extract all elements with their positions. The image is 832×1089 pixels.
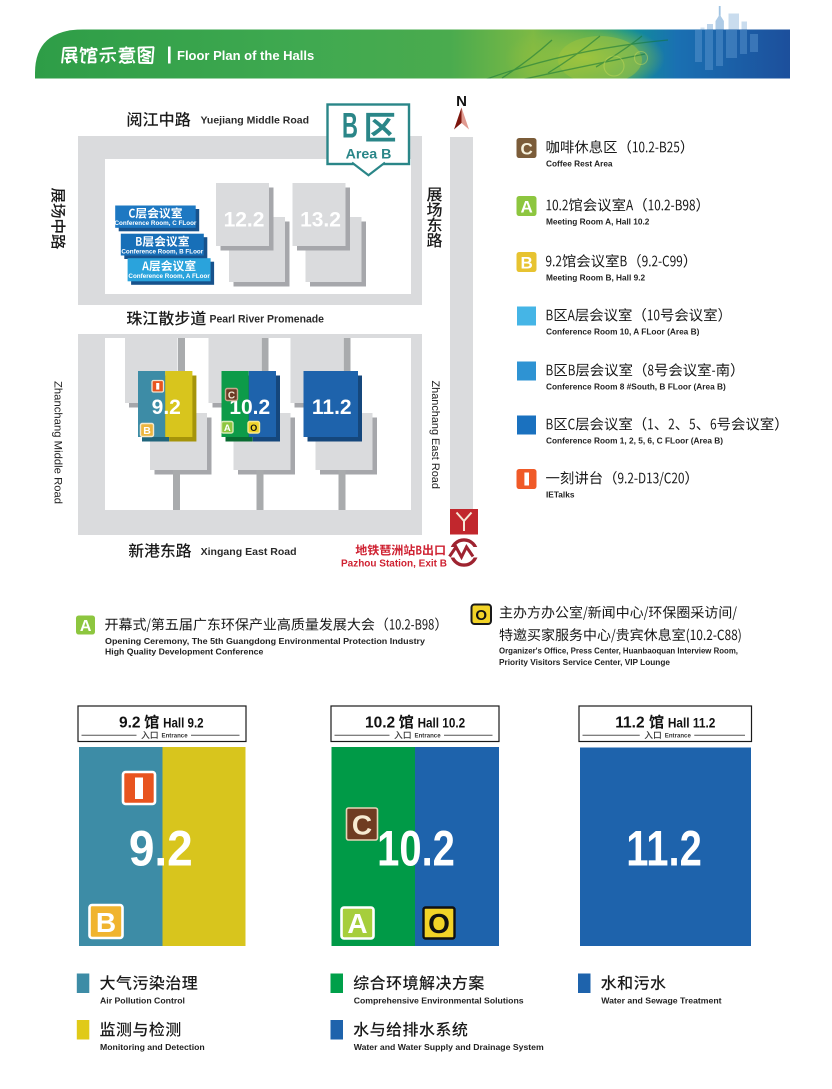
- svg-text:9.2: 9.2: [129, 822, 193, 877]
- svg-text:11.2: 11.2: [626, 820, 702, 876]
- svg-text:Air Pollution Control: Air Pollution Control: [100, 996, 185, 1006]
- svg-text:Zhanchang Middle Road: Zhanchang Middle Road: [52, 381, 64, 504]
- svg-text:Priority Visitors Service Cent: Priority Visitors Service Center, VIP Lo…: [499, 657, 670, 667]
- svg-text:Floor Plan of the Halls: Floor Plan of the Halls: [177, 48, 314, 63]
- svg-text:B: B: [96, 907, 116, 938]
- svg-text:B: B: [143, 425, 151, 437]
- svg-text:N: N: [456, 93, 467, 110]
- svg-text:Conference Room, C FLoor: Conference Room, C FLoor: [115, 220, 197, 227]
- svg-text:Meeting Room A, Hall 10.2: Meeting Room A, Hall 10.2: [546, 216, 650, 226]
- svg-text:13.2: 13.2: [300, 209, 341, 232]
- svg-text:Pazhou Station, Exit B: Pazhou Station, Exit B: [341, 559, 447, 570]
- svg-text:High Quality Development Confe: High Quality Development Conference: [105, 647, 264, 657]
- svg-text:Conference Room 8 #South, B FL: Conference Room 8 #South, B FLoor (Area …: [546, 381, 726, 391]
- svg-text:C: C: [228, 390, 235, 401]
- svg-text:Conference Room 1, 2, 5, 6, C: Conference Room 1, 2, 5, 6, C FLoor (Are…: [546, 435, 723, 445]
- svg-text:A: A: [347, 908, 367, 939]
- svg-text:Meeting Room B, Hall 9.2: Meeting Room B, Hall 9.2: [546, 272, 646, 282]
- svg-text:B: B: [521, 253, 533, 272]
- svg-text:Organizer's Office, Press Cent: Organizer's Office, Press Center, Huanba…: [499, 646, 738, 656]
- svg-text:A: A: [224, 423, 231, 434]
- svg-text:Entrance: Entrance: [665, 733, 692, 740]
- svg-text:Hall 10.2: Hall 10.2: [418, 716, 466, 732]
- svg-text:O: O: [428, 908, 450, 939]
- svg-text:Water and Water Supply and Dra: Water and Water Supply and Drainage Syst…: [354, 1042, 544, 1052]
- svg-text:12.2: 12.2: [224, 209, 265, 232]
- svg-text:11.2: 11.2: [312, 396, 352, 419]
- svg-text:Entrance: Entrance: [162, 733, 189, 740]
- svg-text:O: O: [250, 423, 257, 433]
- svg-text:C: C: [352, 810, 372, 841]
- svg-text:Pearl River Promenade: Pearl River Promenade: [210, 314, 325, 326]
- svg-text:Yuejiang Middle Road: Yuejiang Middle Road: [201, 115, 310, 127]
- svg-text:Conference Room 10, A FLoor (A: Conference Room 10, A FLoor (Area B): [546, 326, 700, 336]
- svg-text:9.2: 9.2: [152, 396, 181, 419]
- svg-text:Water and Sewage Treatment: Water and Sewage Treatment: [601, 996, 721, 1006]
- svg-text:Comprehensive Environmental So: Comprehensive Environmental Solutions: [354, 996, 524, 1006]
- svg-text:O: O: [475, 607, 487, 624]
- svg-text:Conference Room, B FLoor: Conference Room, B FLoor: [121, 248, 203, 255]
- svg-text:IETalks: IETalks: [546, 489, 575, 499]
- svg-text:Area B: Area B: [346, 147, 392, 163]
- svg-text:C: C: [521, 139, 533, 158]
- svg-text:10.2: 10.2: [377, 820, 455, 876]
- svg-text:Hall 11.2: Hall 11.2: [668, 716, 716, 732]
- svg-text:B: B: [342, 108, 358, 146]
- svg-text:Conference Room, A FLoor: Conference Room, A FLoor: [128, 273, 210, 280]
- svg-text:A: A: [80, 618, 92, 635]
- svg-text:Zhanchang East Road: Zhanchang East Road: [429, 381, 441, 489]
- svg-text:Opening Ceremony, The 5th Guan: Opening Ceremony, The 5th Guangdong Envi…: [105, 636, 425, 646]
- svg-text:10.2: 10.2: [365, 715, 395, 732]
- svg-text:Xingang East Road: Xingang East Road: [201, 546, 297, 558]
- svg-text:Monitoring and Detection: Monitoring and Detection: [100, 1042, 205, 1052]
- svg-text:Coffee Rest Area: Coffee Rest Area: [546, 158, 613, 168]
- svg-text:Entrance: Entrance: [415, 733, 442, 740]
- svg-text:11.2: 11.2: [615, 715, 644, 732]
- svg-text:9.2: 9.2: [119, 715, 141, 732]
- svg-text:Hall 9.2: Hall 9.2: [163, 716, 204, 732]
- svg-text:A: A: [521, 197, 533, 216]
